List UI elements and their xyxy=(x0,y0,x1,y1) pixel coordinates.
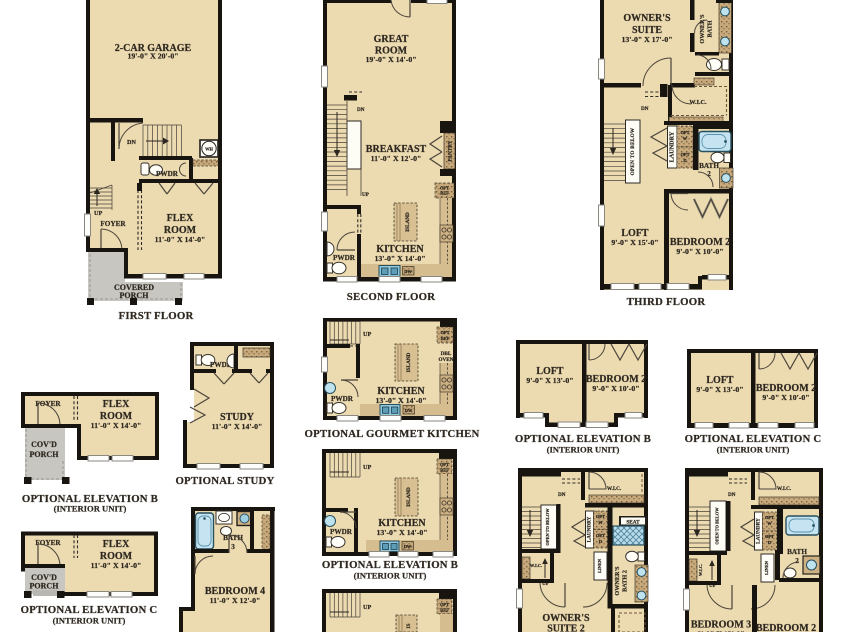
svg-text:IS: IS xyxy=(406,623,412,628)
svg-text:W.I.C.: W.I.C. xyxy=(689,99,707,106)
svg-text:OWNER'S: OWNER'S xyxy=(542,613,590,624)
svg-text:COV'D: COV'D xyxy=(31,440,57,449)
svg-text:REF: REF xyxy=(440,191,449,196)
svg-text:REF: REF xyxy=(440,468,449,473)
svg-text:FLEX: FLEX xyxy=(167,213,194,224)
svg-text:11'-0" X 12'-0": 11'-0" X 12'-0" xyxy=(210,596,261,605)
svg-text:9'-0" X 15'-0": 9'-0" X 15'-0" xyxy=(611,238,658,247)
svg-text:13'-0" X 17'-0": 13'-0" X 17'-0" xyxy=(621,35,672,44)
svg-text:OPT: OPT xyxy=(680,130,689,135)
svg-text:OPT: OPT xyxy=(596,514,605,519)
svg-text:W: W xyxy=(767,521,772,526)
svg-text:UP: UP xyxy=(94,210,102,217)
svg-text:11'-0" X 14'-0": 11'-0" X 14'-0" xyxy=(91,421,142,430)
svg-text:BATH: BATH xyxy=(699,162,719,170)
svg-text:PORCH: PORCH xyxy=(30,450,60,459)
svg-text:19'-0" X 14'-0": 19'-0" X 14'-0" xyxy=(365,55,416,64)
svg-text:OPT: OPT xyxy=(440,602,449,607)
svg-text:DN: DN xyxy=(127,139,136,146)
svg-text:SEAT: SEAT xyxy=(626,520,640,526)
svg-text:DN: DN xyxy=(728,492,736,498)
svg-text:DW: DW xyxy=(404,544,412,549)
svg-text:2: 2 xyxy=(795,557,799,565)
svg-text:19'-0" X 20'-0": 19'-0" X 20'-0" xyxy=(127,52,178,61)
svg-text:OVEN: OVEN xyxy=(439,357,454,363)
svg-text:9'-0" X 10'-0": 9'-0" X 10'-0" xyxy=(676,247,723,256)
svg-text:11'-0" X 12'-0": 11'-0" X 12'-0" xyxy=(371,154,422,163)
svg-text:SECOND FLOOR: SECOND FLOOR xyxy=(347,291,436,303)
svg-text:DN: DN xyxy=(357,107,365,113)
svg-text:REF: REF xyxy=(441,336,450,341)
svg-text:LAUNDRY: LAUNDRY xyxy=(669,131,676,162)
svg-text:OPTIONAL ELEVATION C: OPTIONAL ELEVATION C xyxy=(685,433,822,445)
svg-text:9'-0" X 10'-0": 9'-0" X 10'-0" xyxy=(592,384,639,393)
svg-text:FOYER: FOYER xyxy=(35,400,61,408)
svg-text:THIRD FLOOR: THIRD FLOOR xyxy=(627,296,706,308)
svg-text:FIRST FLOOR: FIRST FLOOR xyxy=(119,310,194,322)
svg-text:ISLAND: ISLAND xyxy=(406,352,412,372)
svg-text:OPT: OPT xyxy=(596,533,605,538)
svg-text:DN: DN xyxy=(641,106,649,112)
svg-text:DN: DN xyxy=(558,492,566,498)
svg-text:OPEN TO BELOW: OPEN TO BELOW xyxy=(545,508,550,546)
svg-text:BEDROOM 2: BEDROOM 2 xyxy=(756,623,816,632)
svg-text:(INTERIOR UNIT): (INTERIOR UNIT) xyxy=(547,445,620,455)
svg-text:BATH: BATH xyxy=(707,20,714,37)
svg-text:ISLAND: ISLAND xyxy=(405,212,411,232)
svg-text:OPTIONAL GOURMET KITCHEN: OPTIONAL GOURMET KITCHEN xyxy=(305,428,480,440)
svg-text:3: 3 xyxy=(231,543,235,551)
svg-text:(INTERIOR UNIT): (INTERIOR UNIT) xyxy=(54,504,127,514)
svg-text:W.I.C.: W.I.C. xyxy=(530,563,542,568)
svg-text:OWNER'S: OWNER'S xyxy=(699,14,706,44)
svg-text:9'-0" X 10'-0": 9'-0" X 10'-0" xyxy=(762,393,809,402)
svg-text:OPEN TO BELOW: OPEN TO BELOW xyxy=(630,127,636,175)
svg-text:(INTERIOR UNIT): (INTERIOR UNIT) xyxy=(53,616,126,626)
svg-text:11'-0" X 14'-0": 11'-0" X 14'-0" xyxy=(212,422,263,431)
svg-text:WH: WH xyxy=(205,146,213,151)
svg-text:13'-0" X 14'-0": 13'-0" X 14'-0" xyxy=(376,528,427,537)
svg-text:D: D xyxy=(768,540,771,545)
svg-text:OPTIONAL ELEVATION B: OPTIONAL ELEVATION B xyxy=(322,559,458,571)
svg-text:REF: REF xyxy=(440,608,449,613)
svg-text:OPT: OPT xyxy=(680,152,689,157)
svg-text:DW: DW xyxy=(404,269,412,274)
svg-text:PWDR: PWDR xyxy=(330,528,353,536)
svg-text:LINEN: LINEN xyxy=(764,560,769,575)
svg-text:PANTRY: PANTRY xyxy=(448,140,454,161)
svg-text:9'-0" X 13'-0": 9'-0" X 13'-0" xyxy=(526,376,573,385)
svg-text:9'-0" X 13'-0": 9'-0" X 13'-0" xyxy=(696,385,743,394)
svg-text:13'-0" X 14'-0": 13'-0" X 14'-0" xyxy=(374,254,425,263)
svg-text:D: D xyxy=(599,539,602,544)
svg-text:OPEN TO BELOW: OPEN TO BELOW xyxy=(715,507,720,545)
svg-text:UP: UP xyxy=(363,604,371,611)
svg-text:FOYER: FOYER xyxy=(100,220,126,228)
svg-text:UP: UP xyxy=(363,331,371,338)
svg-text:OPTIONAL ELEVATION B: OPTIONAL ELEVATION B xyxy=(515,433,651,445)
svg-text:OPTIONAL STUDY: OPTIONAL STUDY xyxy=(175,475,274,487)
svg-text:PWDR: PWDR xyxy=(156,170,179,178)
svg-text:OWNER'S: OWNER'S xyxy=(614,566,621,596)
svg-text:PWDR: PWDR xyxy=(331,395,354,403)
svg-text:OPT: OPT xyxy=(440,330,449,335)
svg-text:UP: UP xyxy=(362,192,370,198)
svg-text:OPT: OPT xyxy=(765,534,774,539)
svg-text:UP: UP xyxy=(363,464,371,471)
svg-text:BATH 2: BATH 2 xyxy=(622,570,629,592)
svg-text:13'-0" X 14'-0": 13'-0" X 14'-0" xyxy=(375,396,426,405)
svg-text:DW: DW xyxy=(405,408,413,413)
svg-text:D: D xyxy=(683,158,686,163)
svg-text:OPT: OPT xyxy=(765,515,774,520)
svg-text:LAUNDRY: LAUNDRY xyxy=(756,518,762,544)
svg-text:(INTERIOR UNIT): (INTERIOR UNIT) xyxy=(717,445,790,455)
svg-text:PWDR: PWDR xyxy=(333,254,356,262)
svg-text:FLEX: FLEX xyxy=(103,539,130,550)
svg-text:FOYER: FOYER xyxy=(35,539,61,547)
svg-text:W: W xyxy=(598,520,603,525)
svg-text:W.I.C.: W.I.C. xyxy=(607,486,622,492)
svg-text:W.I.C.: W.I.C. xyxy=(698,564,703,576)
svg-text:GREAT: GREAT xyxy=(374,34,409,45)
svg-text:W: W xyxy=(683,136,688,141)
svg-text:BATH: BATH xyxy=(787,548,807,556)
svg-text:11'-0" X 14'-0": 11'-0" X 14'-0" xyxy=(91,561,142,570)
svg-text:SUITE 2: SUITE 2 xyxy=(547,624,585,632)
svg-text:LINEN: LINEN xyxy=(597,558,602,573)
svg-text:W.I.C.: W.I.C. xyxy=(777,486,792,492)
svg-text:OWNER'S: OWNER'S xyxy=(623,13,671,24)
svg-text:11'-0" X 14'-0": 11'-0" X 14'-0" xyxy=(155,235,206,244)
svg-text:ISLAND: ISLAND xyxy=(406,487,412,507)
svg-text:OPTIONAL ELEVATION C: OPTIONAL ELEVATION C xyxy=(21,604,158,616)
svg-text:LAUNDRY: LAUNDRY xyxy=(587,516,593,542)
svg-text:FLEX: FLEX xyxy=(103,399,130,410)
svg-text:(INTERIOR UNIT): (INTERIOR UNIT) xyxy=(354,571,427,581)
svg-text:OPT: OPT xyxy=(440,462,449,467)
svg-text:PORCH: PORCH xyxy=(30,582,60,591)
